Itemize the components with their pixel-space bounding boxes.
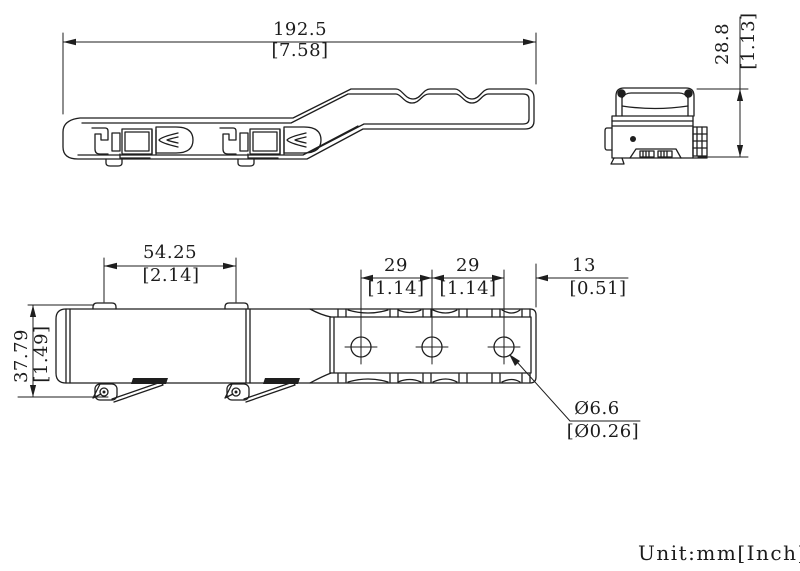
bottom-view <box>56 303 536 402</box>
dim-hole-diameter-inch: [Ø0.26] <box>553 422 653 442</box>
side-view <box>63 89 534 166</box>
dim-tab-spacing-inch: [2.14] <box>111 266 231 286</box>
dim-overall-width-inch: [1.49] <box>32 314 54 394</box>
unit-label: Unit:mm[Inch] <box>638 541 800 565</box>
dim-hole-diameter-mm: Ø6.6 <box>557 399 637 419</box>
dim-end-offset-inch: [0.51] <box>548 279 648 299</box>
dim-overall-height-inch: [1.13] <box>739 6 761 76</box>
dim-tab-spacing-mm: 54.25 <box>110 243 230 263</box>
dim-hole-pitch-2-mm: 29 <box>438 256 498 276</box>
dim-overall-length-inch: [7.58] <box>240 41 360 61</box>
dim-overall-length-mm: 192.5 <box>240 20 360 40</box>
drawing-sheet: 192.5 [7.58] 28.8 [1.13] 54.25 [2.14] 29… <box>0 0 800 571</box>
dim-hole-pitch-2-inch: [1.14] <box>418 279 518 299</box>
end-view <box>605 88 707 164</box>
dim-hole-pitch-1-mm: 29 <box>366 256 426 276</box>
dim-overall-height-mm: 28.8 <box>713 9 735 79</box>
dim-end-offset-mm: 13 <box>554 256 614 276</box>
